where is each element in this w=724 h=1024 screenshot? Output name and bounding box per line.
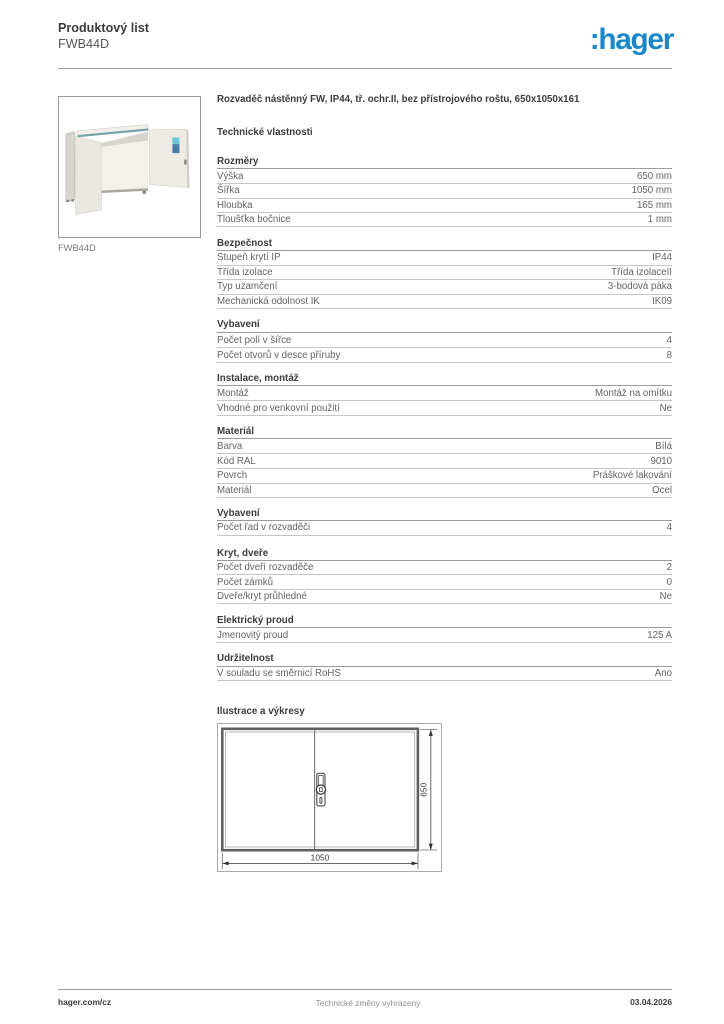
svg-text:650: 650 <box>418 783 428 797</box>
svg-text:1050: 1050 <box>310 853 329 863</box>
